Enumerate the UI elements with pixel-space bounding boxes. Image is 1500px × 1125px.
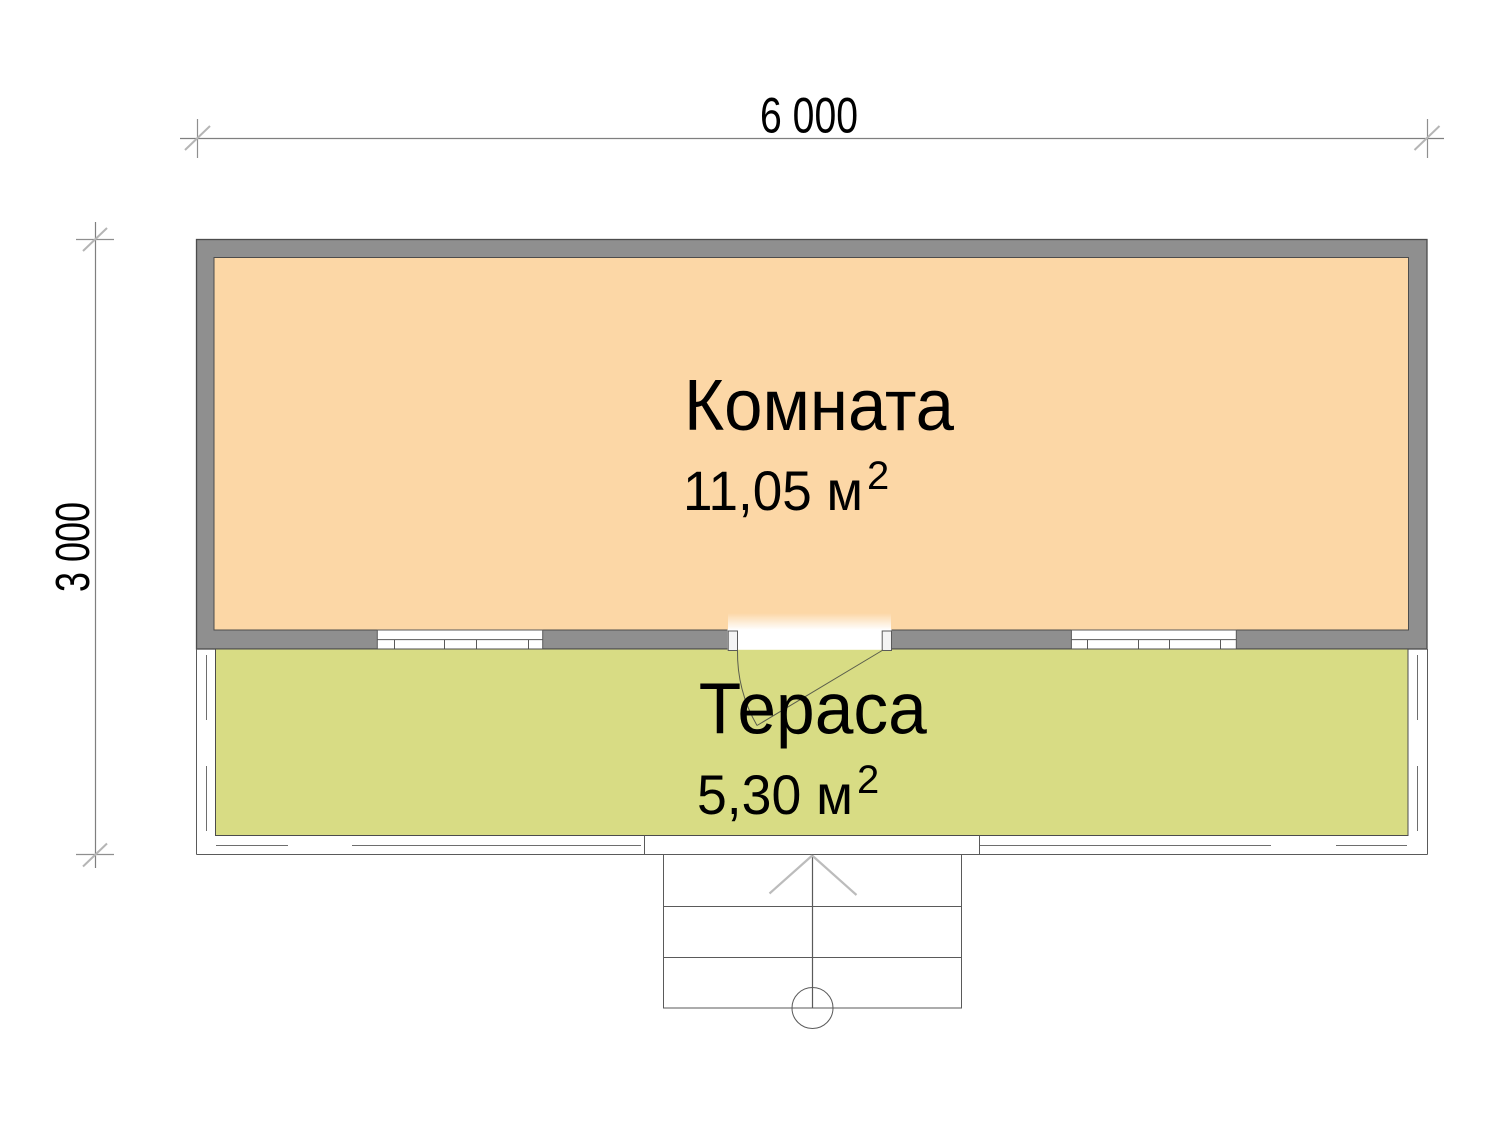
svg-text:6 000: 6 000 xyxy=(760,88,858,144)
svg-text:5,30 м: 5,30 м xyxy=(697,763,853,826)
svg-text:11,05 м: 11,05 м xyxy=(683,459,863,522)
svg-text:Тераса: Тераса xyxy=(699,670,928,750)
svg-text:3 000: 3 000 xyxy=(47,502,100,592)
svg-text:2: 2 xyxy=(867,454,889,498)
svg-text:Комната: Комната xyxy=(684,366,955,446)
svg-text:2: 2 xyxy=(857,758,879,802)
